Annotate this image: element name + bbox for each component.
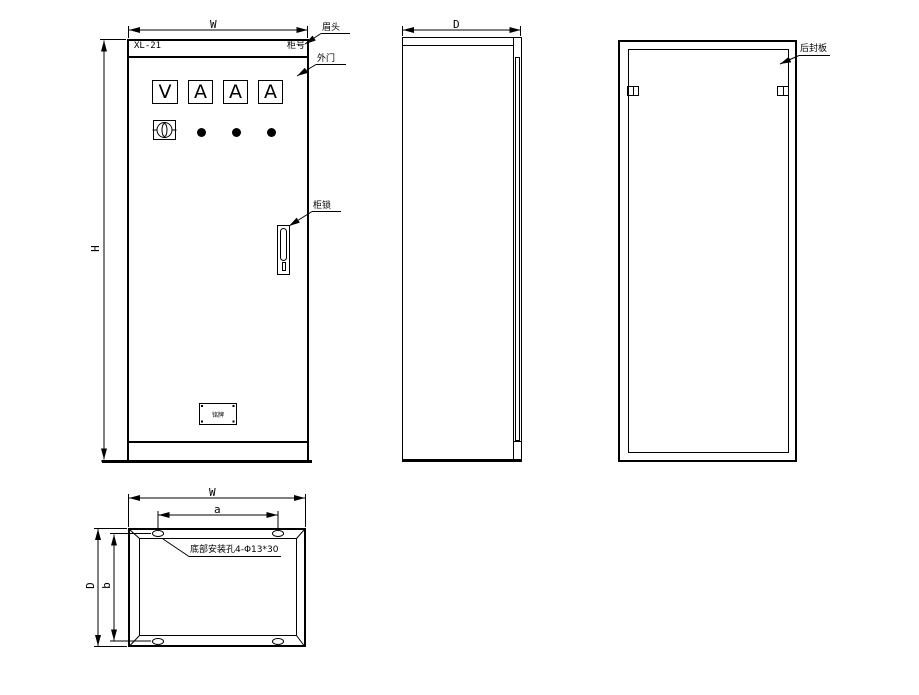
- header-strip-divider: [128, 56, 308, 58]
- callout-rear-panel: 后封板: [800, 45, 827, 54]
- side-top-cap-line: [403, 45, 513, 46]
- side-depth-dim-label: D: [453, 19, 460, 30]
- model-label: XL-21: [134, 42, 161, 51]
- ammeter-3: A: [258, 80, 283, 104]
- mounting-hole-bottom-right: [272, 638, 284, 645]
- side-bottom-divider: [513, 441, 521, 443]
- cabinet-base-line: [102, 460, 312, 463]
- callout-lock: 柜锁: [313, 202, 331, 211]
- indicator-lamp-1: [197, 128, 206, 137]
- bottom-depth-dim-label: D: [85, 582, 96, 589]
- indicator-lamp-3: [267, 128, 276, 137]
- callout-header-strip: 眉头: [322, 24, 340, 33]
- door-lock-handle: [280, 228, 287, 261]
- side-door-panel: [515, 57, 521, 441]
- front-width-dim-label: W: [210, 19, 217, 30]
- mounting-hole-top-right: [272, 530, 284, 537]
- rear-panel-clip-right: [777, 86, 789, 96]
- bottom-hole-pitch-y-label: b: [101, 582, 112, 589]
- door-lock-tab: [282, 262, 286, 271]
- cabinet-drawing: W H XL-21 柜号 V A A A 铭牌 眉头 外门 柜锁 D: [0, 0, 919, 695]
- bottom-hole-pitch-x-label: a: [214, 504, 221, 515]
- voltmeter: V: [152, 80, 178, 104]
- front-height-dim-label: H: [90, 245, 101, 252]
- rotary-switch: [153, 120, 176, 140]
- nameplate-text: 铭牌: [212, 410, 224, 419]
- nameplate: 铭牌: [199, 403, 237, 425]
- door-bottom-divider: [128, 441, 308, 443]
- callout-mounting-holes: 底部安装孔4-Φ13*30: [190, 546, 278, 555]
- callout-outer-door: 外门: [317, 55, 335, 64]
- mounting-hole-bottom-left: [152, 638, 164, 645]
- indicator-lamp-2: [232, 128, 241, 137]
- side-outline: [402, 37, 522, 460]
- mounting-hole-top-left: [152, 530, 164, 537]
- ammeter-1: A: [188, 80, 213, 104]
- rear-panel: [628, 49, 789, 453]
- rear-panel-clip-left: [627, 86, 639, 96]
- bottom-width-dim-label: W: [209, 487, 216, 498]
- cabinet-number-label: 柜号: [287, 42, 305, 51]
- side-base-line: [402, 459, 522, 462]
- ammeter-2: A: [223, 80, 248, 104]
